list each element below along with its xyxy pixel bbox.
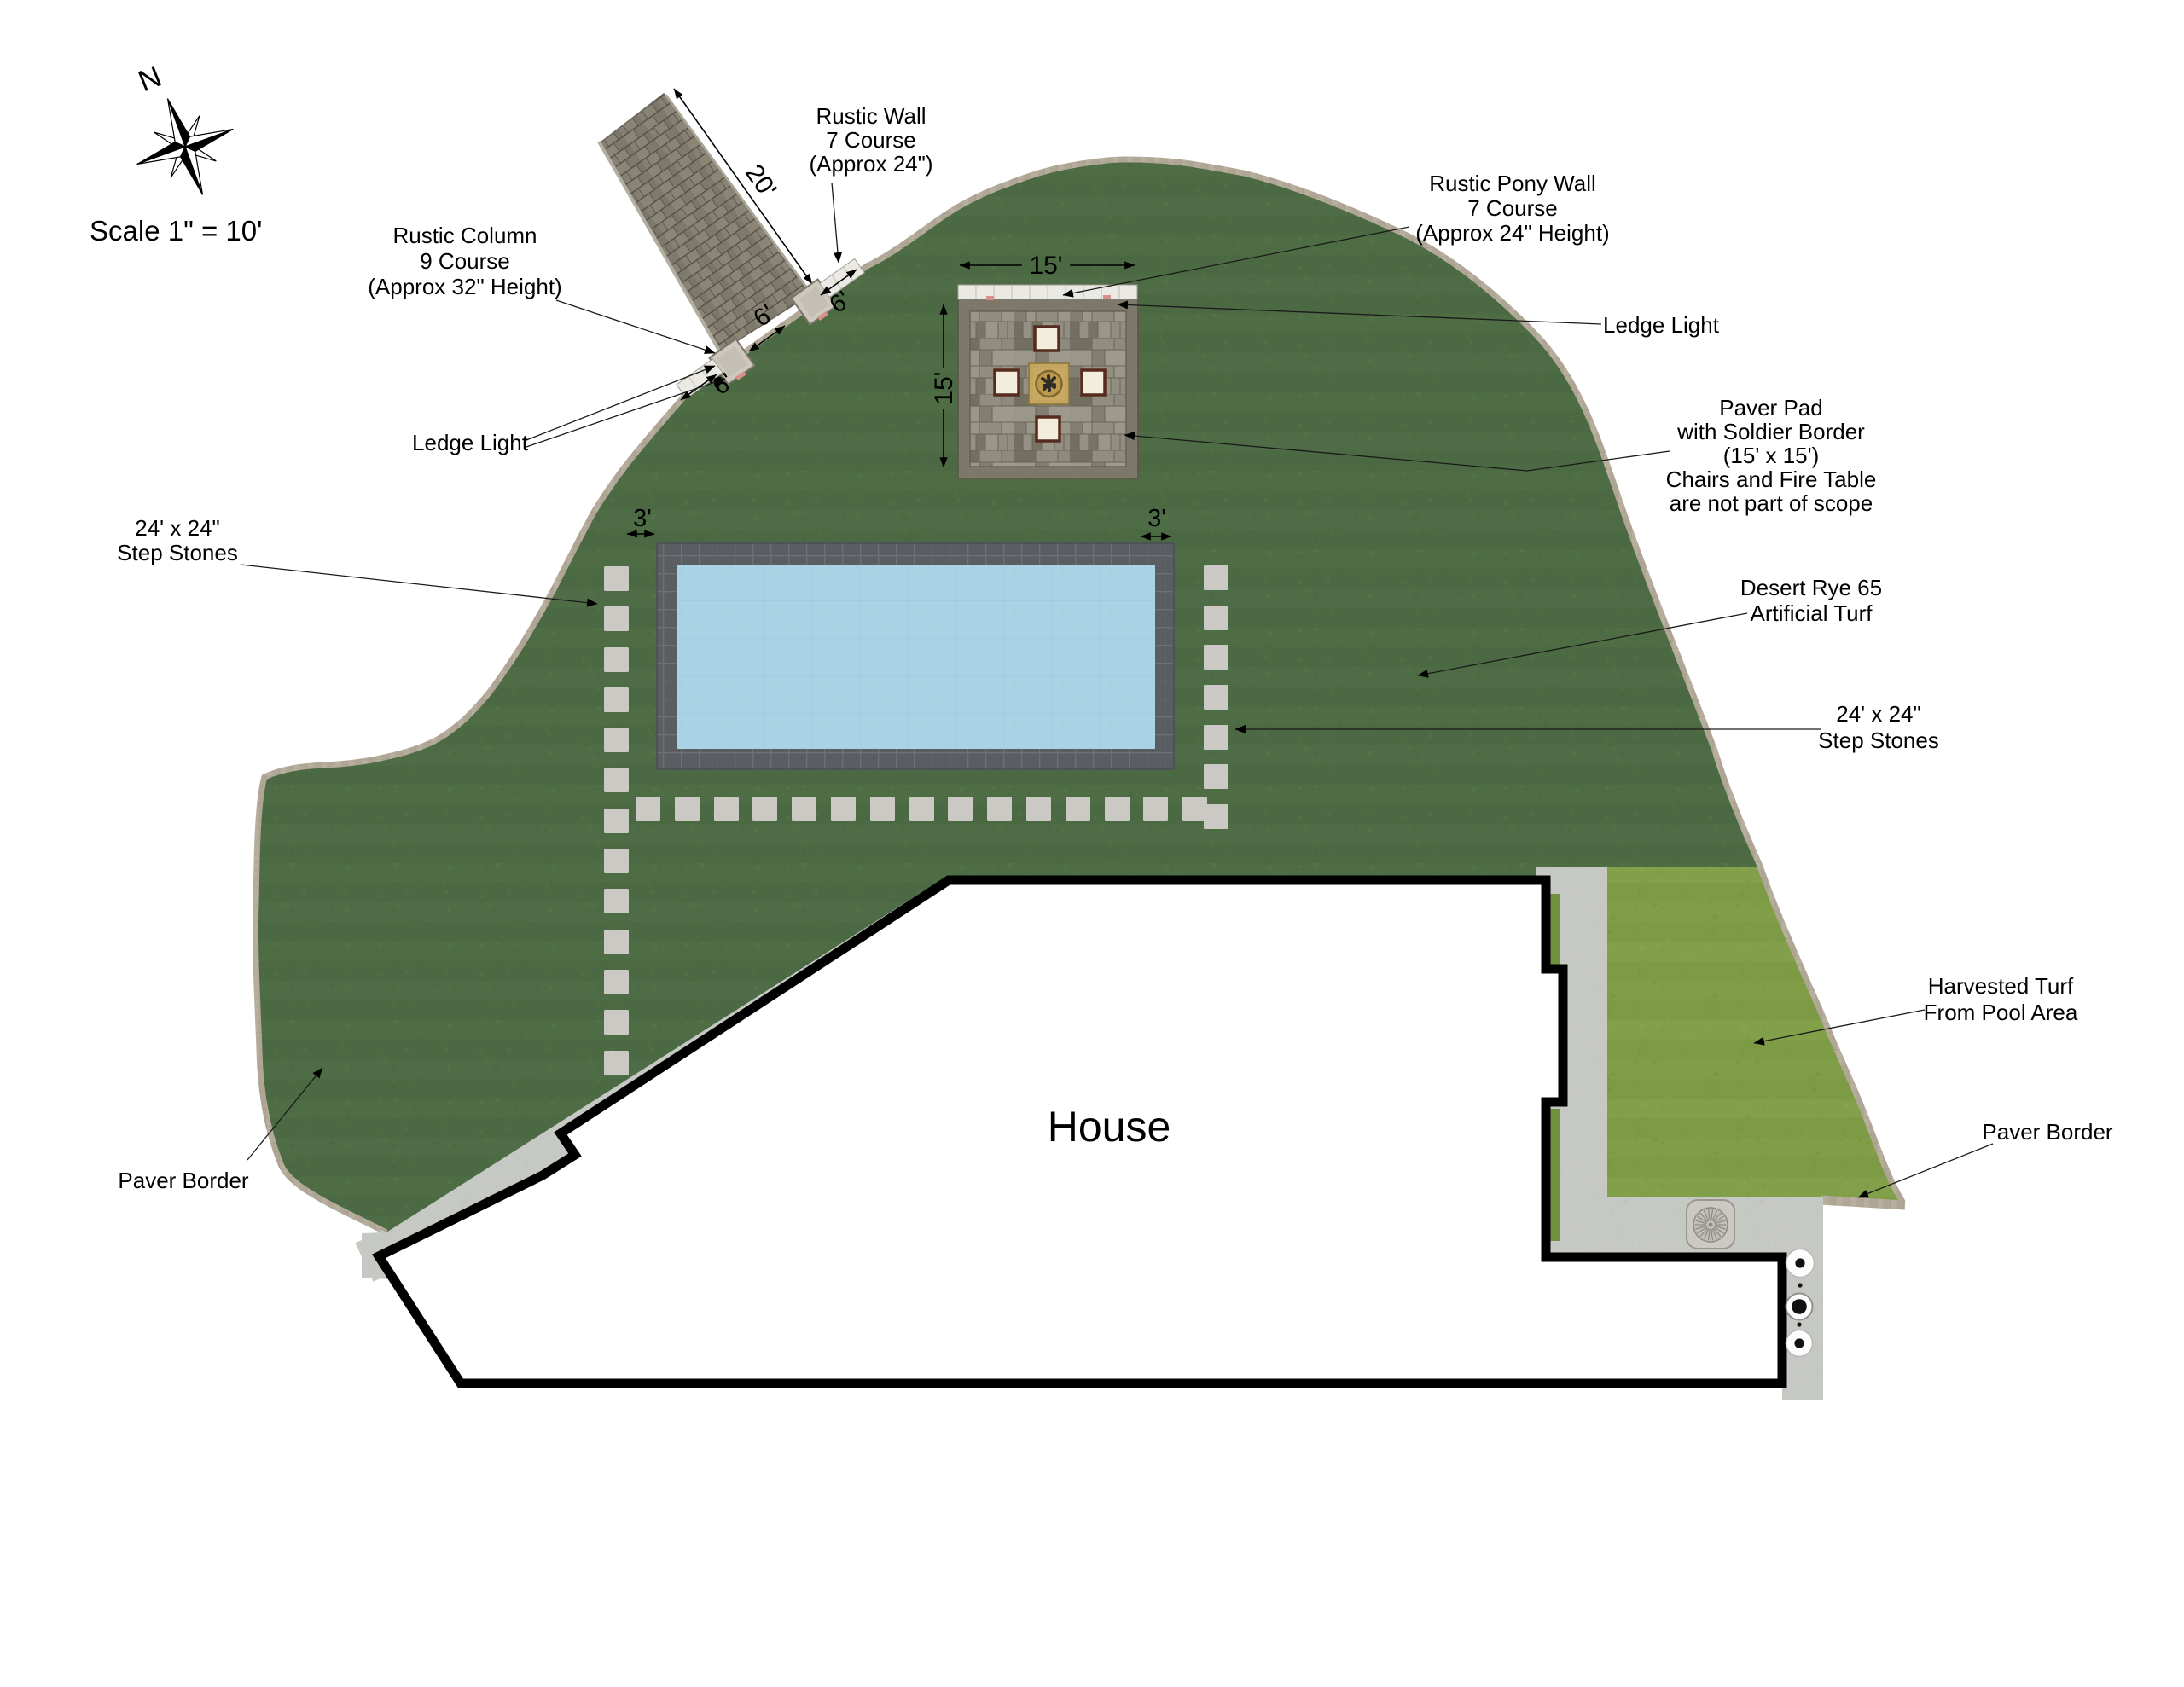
svg-text:24' x 24": 24' x 24" — [135, 515, 219, 541]
svg-text:are not part of scope: are not part of scope — [1670, 490, 1873, 516]
svg-text:Ledge Light: Ledge Light — [1603, 312, 1720, 338]
svg-text:Rustic Column: Rustic Column — [392, 223, 537, 248]
svg-text:Paver Border: Paver Border — [118, 1168, 249, 1193]
svg-text:Harvested Turf: Harvested Turf — [1928, 973, 2074, 999]
svg-text:Desert Rye 65: Desert Rye 65 — [1740, 575, 1882, 600]
svg-text:Paver Pad: Paver Pad — [1719, 395, 1822, 420]
svg-text:15': 15' — [930, 371, 958, 404]
svg-text:9 Course: 9 Course — [420, 248, 510, 274]
svg-text:3': 3' — [633, 505, 652, 532]
svg-text:with Soldier Border: with Soldier Border — [1676, 419, 1865, 444]
svg-text:15': 15' — [1029, 252, 1062, 280]
svg-text:(Approx 32" Height): (Approx 32" Height) — [368, 274, 561, 299]
svg-text:Scale 1" = 10': Scale 1" = 10' — [90, 215, 262, 246]
svg-text:Step Stones: Step Stones — [117, 540, 238, 565]
svg-text:From Pool Area: From Pool Area — [1924, 1000, 2078, 1025]
svg-text:Rustic Pony Wall: Rustic Pony Wall — [1429, 171, 1596, 196]
svg-text:7 Course: 7 Course — [826, 127, 916, 153]
svg-text:(15' x 15'): (15' x 15') — [1723, 443, 1820, 468]
svg-text:Step Stones: Step Stones — [1818, 728, 1939, 753]
svg-text:24' x 24": 24' x 24" — [1836, 701, 1920, 727]
svg-text:Chairs and Fire Table: Chairs and Fire Table — [1666, 467, 1877, 492]
svg-text:Ledge Light: Ledge Light — [412, 430, 529, 455]
svg-text:Rustic Wall: Rustic Wall — [816, 103, 926, 129]
svg-text:Artificial Turf: Artificial Turf — [1750, 600, 1873, 626]
svg-text:(Approx 24" Height): (Approx 24" Height) — [1415, 220, 1609, 246]
svg-text:House: House — [1048, 1103, 1171, 1151]
svg-text:(Approx 24"): (Approx 24") — [809, 151, 932, 177]
svg-text:3': 3' — [1147, 505, 1166, 532]
svg-text:7 Course: 7 Course — [1467, 195, 1558, 221]
svg-text:Paver Border: Paver Border — [1982, 1119, 2113, 1145]
